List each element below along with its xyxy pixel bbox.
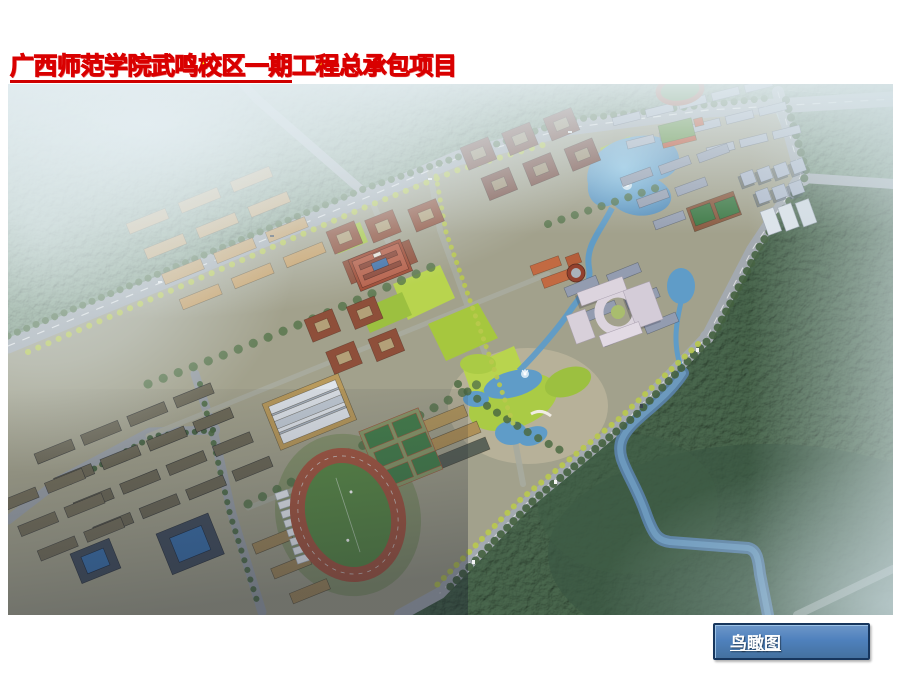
auditorium-cylinder — [567, 264, 585, 282]
slide-title: 广西师范学院武鸣校区一期工程总承包项目 — [10, 46, 457, 81]
campus-aerial-svg — [8, 84, 893, 615]
campus-aerial-rendering — [8, 84, 893, 615]
east-pond — [667, 268, 695, 304]
birdseye-view-caption-label: 鸟瞰图 — [730, 629, 781, 654]
fountain-south — [521, 369, 529, 378]
slide-title-rest: 工程总承包项目 — [292, 53, 457, 80]
birdseye-view-caption-button[interactable]: 鸟瞰图 — [713, 623, 870, 660]
slide-title-underlined: 广西师范学院武鸣校区一期 — [10, 53, 292, 83]
presentation-slide: 广西师范学院武鸣校区一期工程总承包项目 — [0, 0, 900, 675]
